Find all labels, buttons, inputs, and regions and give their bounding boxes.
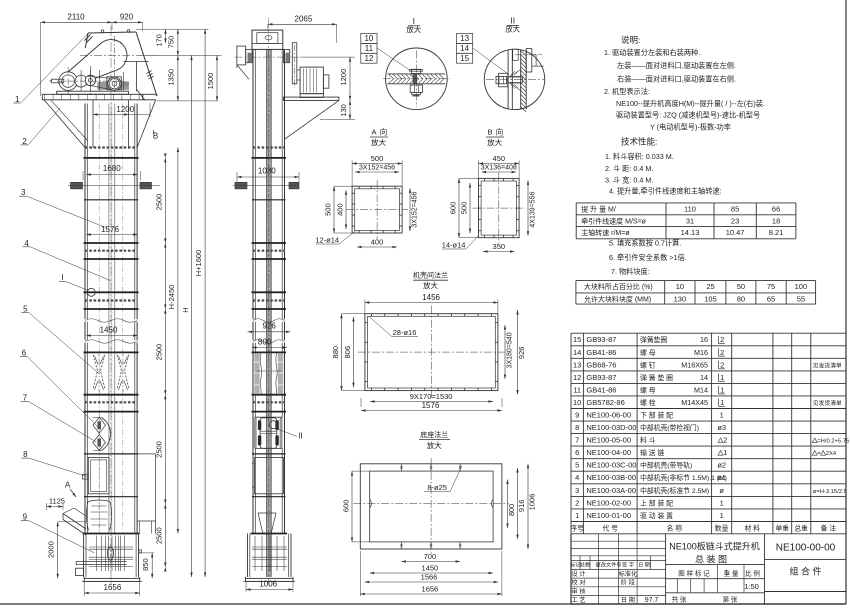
svg-text:1: 1 (575, 511, 579, 520)
svg-text:NE100-03A-00: NE100-03A-00 (586, 486, 636, 495)
svg-text:7: 7 (23, 393, 28, 402)
svg-text:螺 栓: 螺 栓 (640, 398, 656, 407)
svg-text:图 样 标 记: 图 样 标 记 (678, 569, 710, 578)
svg-text:350: 350 (493, 242, 506, 251)
svg-text:4: 4 (24, 239, 29, 248)
svg-text:1500: 1500 (206, 73, 215, 90)
svg-text:14: 14 (573, 348, 581, 357)
svg-text:GB93-87: GB93-87 (586, 373, 616, 382)
svg-text:序号: 序号 (570, 524, 584, 533)
svg-text:放大: 放大 (427, 440, 442, 450)
svg-text:800: 800 (507, 504, 516, 517)
svg-text:NE100-00-00: NE100-00-00 (776, 543, 836, 554)
svg-text:中部机壳(非标节 1.5M),1 (M): 中部机壳(非标节 1.5M),1 (M) (640, 473, 727, 482)
svg-text:M14: M14 (694, 385, 708, 394)
svg-text:1: 1 (720, 398, 724, 407)
svg-text:ø=H-3.15/2.5: ø=H-3.15/2.5 (813, 489, 847, 495)
svg-text:25: 25 (706, 282, 714, 291)
svg-text:数量: 数量 (715, 524, 729, 533)
svg-text:2: 2 (575, 498, 579, 507)
svg-text:2: 2 (22, 137, 27, 146)
svg-text:1125: 1125 (49, 497, 65, 506)
svg-text:14.13: 14.13 (681, 228, 700, 237)
svg-text:97.7: 97.7 (645, 597, 659, 604)
svg-text:750: 750 (167, 36, 176, 49)
svg-text:3: 3 (575, 486, 579, 495)
svg-text:第 张: 第 张 (723, 595, 738, 604)
svg-text:23: 23 (731, 216, 739, 225)
svg-text:12: 12 (364, 54, 373, 63)
svg-text:5: 5 (23, 305, 28, 314)
svg-text:2. 斗 距: 0.4 M.: 2. 斗 距: 0.4 M. (605, 164, 653, 173)
svg-text:ø2: ø2 (717, 461, 726, 470)
svg-text:3: 3 (21, 188, 26, 197)
svg-text:14: 14 (700, 373, 708, 382)
svg-text:4X139=556: 4X139=556 (530, 191, 537, 227)
svg-text:允许大块料块度 (MM): 允许大块料块度 (MM) (584, 295, 651, 304)
svg-text:700: 700 (424, 552, 437, 561)
svg-text:1: 1 (720, 411, 724, 420)
svg-text:见发货清单: 见发货清单 (813, 399, 842, 407)
svg-text:2500: 2500 (155, 194, 164, 211)
svg-text:放大: 放大 (423, 280, 438, 290)
svg-text:NE100-03B-00: NE100-03B-00 (586, 473, 636, 482)
svg-text:中部机壳(标准节 2.5M): 中部机壳(标准节 2.5M) (640, 486, 709, 495)
svg-text:向: 向 (380, 127, 388, 137)
svg-text:1576: 1576 (101, 225, 119, 234)
svg-text:弹 簧 垫 圈: 弹 簧 垫 圈 (640, 373, 673, 382)
svg-text:5. 填充系数按 0.7计算.: 5. 填充系数按 0.7计算. (609, 238, 681, 247)
svg-text:600: 600 (342, 500, 351, 513)
svg-text:处数: 处数 (580, 561, 591, 569)
svg-text:3X136=408: 3X136=408 (481, 165, 517, 172)
svg-text:2500: 2500 (155, 344, 164, 361)
svg-text:1200: 1200 (116, 105, 134, 114)
svg-text:880: 880 (331, 346, 340, 359)
svg-text:Y (电动机型号)-极数-功率: Y (电动机型号)-极数-功率 (650, 122, 731, 131)
svg-text:底座法兰: 底座法兰 (420, 430, 448, 439)
svg-text:8: 8 (575, 423, 579, 432)
svg-text:2500: 2500 (155, 527, 164, 544)
svg-text:M16X65: M16X65 (681, 360, 708, 369)
svg-text:50: 50 (737, 282, 745, 291)
svg-text:105: 105 (704, 295, 717, 304)
svg-text:18: 18 (772, 216, 780, 225)
svg-text:130: 130 (339, 104, 348, 117)
svg-text:2: 2 (723, 436, 727, 445)
svg-text:1006: 1006 (528, 494, 537, 511)
svg-text:9: 9 (575, 411, 579, 420)
svg-text:II: II (298, 432, 302, 441)
svg-text:2110: 2110 (67, 13, 85, 22)
svg-text:1: 1 (720, 511, 724, 520)
svg-text:螺 钉: 螺 钉 (640, 360, 656, 369)
svg-text:1680: 1680 (103, 164, 121, 173)
svg-text:NE100-03C-00: NE100-03C-00 (586, 461, 636, 470)
svg-text:130: 130 (674, 295, 687, 304)
svg-text:450: 450 (493, 154, 506, 163)
svg-text:见发货清单: 见发货清单 (813, 361, 842, 369)
svg-text:GB5782-86: GB5782-86 (586, 398, 624, 407)
svg-text:代 号: 代 号 (602, 524, 618, 533)
svg-text:1. 驱动装置分左装和右装两种.: 1. 驱动装置分左装和右装两种. (604, 48, 700, 57)
svg-text:1200: 1200 (339, 69, 348, 86)
svg-text:=: = (817, 451, 821, 457)
svg-text:1456: 1456 (422, 293, 440, 302)
svg-text:ø3: ø3 (717, 423, 726, 432)
svg-text:上 部 装 配: 上 部 装 配 (640, 498, 673, 507)
svg-text:500: 500 (324, 203, 333, 216)
svg-text:NE100-04-00: NE100-04-00 (586, 448, 631, 457)
svg-text:7: 7 (575, 436, 579, 445)
svg-text:75: 75 (767, 282, 775, 291)
svg-text:110: 110 (684, 205, 696, 214)
svg-text:10: 10 (676, 282, 684, 291)
svg-text:GB41-86: GB41-86 (586, 348, 616, 357)
svg-text:料 斗: 料 斗 (640, 436, 656, 445)
svg-text:66: 66 (772, 205, 780, 214)
svg-text:更改文件号: 更改文件号 (596, 561, 622, 569)
svg-text:8.21: 8.21 (769, 228, 784, 237)
svg-text:16: 16 (700, 335, 708, 344)
svg-text:6. 牵引件安全系数 >1倍.: 6. 牵引件安全系数 >1倍. (609, 253, 687, 262)
svg-text:NE100--提升机高度H(M)--提升量( / ): NE100--提升机高度H(M)--提升量( / )--左(右)装. (616, 99, 765, 108)
svg-text:3X152=456: 3X152=456 (359, 165, 395, 172)
svg-text:A: A (371, 128, 376, 137)
svg-text:NE100-05-00: NE100-05-00 (586, 436, 631, 445)
svg-text:2: 2 (720, 348, 724, 357)
svg-text:共 张: 共 张 (672, 595, 687, 604)
svg-text:右装——面对进料口,驱动装置在右侧.: 右装——面对进料口,驱动装置在右侧. (617, 75, 736, 84)
svg-text:1576: 1576 (422, 401, 440, 410)
svg-text:放大: 放大 (505, 23, 520, 33)
svg-text:806: 806 (343, 346, 352, 359)
svg-text:4: 4 (575, 473, 579, 482)
svg-text:重 量: 重 量 (724, 570, 739, 578)
svg-text:13: 13 (460, 34, 469, 43)
svg-text:500: 500 (371, 154, 384, 163)
svg-text:2X4: 2X4 (826, 451, 837, 457)
svg-text:M16: M16 (694, 348, 708, 357)
svg-text:提 升 量 M/: 提 升 量 M/ (581, 205, 616, 214)
svg-text:15: 15 (460, 54, 469, 63)
svg-text:B: B (487, 128, 492, 137)
svg-text:920: 920 (120, 13, 134, 22)
svg-text:工 艺: 工 艺 (571, 596, 585, 604)
svg-text:2. 机型表示法:: 2. 机型表示法: (604, 87, 650, 96)
svg-text:组 合 件: 组 合 件 (789, 566, 821, 577)
svg-text:NE100板链斗式提升机: NE100板链斗式提升机 (669, 541, 760, 552)
svg-text:600: 600 (449, 202, 458, 215)
svg-text:55: 55 (797, 295, 805, 304)
svg-text:500: 500 (460, 202, 469, 215)
svg-text:13: 13 (573, 360, 581, 369)
svg-text:916: 916 (517, 500, 526, 513)
svg-text:日 期: 日 期 (638, 562, 650, 569)
svg-text:GB68-76: GB68-76 (586, 360, 616, 369)
svg-text:9: 9 (23, 512, 28, 521)
svg-text:GB93-87: GB93-87 (586, 335, 616, 344)
svg-text:总 装 图: 总 装 图 (695, 554, 727, 565)
svg-text:H: H (181, 307, 190, 312)
svg-text:设 计: 设 计 (571, 570, 585, 578)
svg-text:4. 提升量,牵引件线速度和主轴转速:: 4. 提升量,牵引件线速度和主轴转速: (609, 187, 722, 196)
svg-text:10.47: 10.47 (726, 228, 745, 237)
svg-text:中部机壳(带检视门): 中部机壳(带检视门) (640, 423, 699, 432)
svg-text:926: 926 (263, 322, 277, 331)
svg-text:80: 80 (737, 295, 745, 304)
svg-text:放大: 放大 (487, 137, 502, 147)
svg-text:12: 12 (573, 373, 581, 382)
svg-text:日 期: 日 期 (621, 596, 635, 604)
svg-text:驱 动 装 置: 驱 动 装 置 (640, 511, 673, 520)
svg-text:输 送 链: 输 送 链 (640, 448, 664, 457)
svg-text:1: 1 (720, 498, 724, 507)
svg-text:1656: 1656 (422, 585, 439, 594)
svg-text:材 料: 材 料 (745, 524, 761, 533)
svg-text:6: 6 (22, 349, 27, 358)
svg-text:926: 926 (517, 347, 526, 360)
svg-text:阶 段: 阶 段 (621, 579, 635, 587)
svg-text:400: 400 (371, 238, 384, 247)
svg-text:1:50: 1:50 (744, 582, 759, 591)
svg-text:主轴转速 r/M=ø: 主轴转速 r/M=ø (581, 228, 630, 237)
svg-text:大块料所占百分比 (%): 大块料所占百分比 (%) (584, 282, 653, 291)
svg-text:1450: 1450 (100, 325, 118, 334)
svg-text:向: 向 (496, 127, 504, 137)
svg-text:1006: 1006 (259, 580, 277, 589)
svg-text:放大: 放大 (406, 24, 421, 34)
svg-text:1: 1 (720, 385, 724, 394)
svg-text:1450: 1450 (422, 564, 439, 573)
svg-text:8: 8 (23, 450, 28, 459)
svg-text:1: 1 (15, 95, 20, 104)
svg-text:2500: 2500 (155, 441, 164, 458)
svg-text:技术性能:: 技术性能: (621, 137, 657, 147)
svg-text:牵引件线速度 M/S=ø: 牵引件线速度 M/S=ø (581, 216, 646, 225)
svg-text:7. 物料块度:: 7. 物料块度: (611, 267, 650, 276)
svg-text:2: 2 (720, 335, 724, 344)
svg-text:2000: 2000 (47, 541, 56, 558)
svg-text:14: 14 (460, 44, 469, 53)
svg-text:400: 400 (336, 203, 345, 216)
svg-text:机壳间法兰: 机壳间法兰 (413, 271, 448, 280)
svg-text:15: 15 (573, 335, 581, 344)
svg-text:8-ø25: 8-ø25 (427, 483, 447, 492)
svg-text:中部机壳(带导轨): 中部机壳(带导轨) (640, 461, 692, 470)
svg-text:NE100-02-00: NE100-02-00 (586, 498, 631, 507)
svg-text:标准化: 标准化 (619, 570, 638, 578)
svg-text:名 称: 名 称 (667, 524, 683, 533)
svg-text:5: 5 (575, 461, 579, 470)
svg-text:总重: 总重 (794, 524, 808, 533)
svg-text:M14X45: M14X45 (681, 398, 708, 407)
svg-text:=H/0.2+5.75: =H/0.2+5.75 (817, 439, 849, 445)
svg-text:弹簧垫圈: 弹簧垫圈 (640, 335, 667, 344)
svg-text:H+1600: H+1600 (194, 250, 203, 276)
svg-text:11: 11 (365, 44, 374, 53)
svg-text:65: 65 (767, 295, 775, 304)
svg-text:NE100-06-00: NE100-06-00 (586, 411, 631, 420)
svg-text:100: 100 (795, 282, 808, 291)
svg-text:放大: 放大 (371, 137, 386, 147)
svg-text:螺 母: 螺 母 (640, 348, 656, 357)
svg-text:NE100-03D-00: NE100-03D-00 (586, 423, 636, 432)
svg-text:2: 2 (720, 360, 724, 369)
svg-text:800: 800 (258, 337, 272, 346)
svg-text:9X170=1530: 9X170=1530 (410, 392, 453, 401)
svg-text:1. 料斗容积: 0.033 M.: 1. 料斗容积: 0.033 M. (605, 152, 674, 161)
svg-text:1566: 1566 (421, 573, 438, 582)
svg-text:11: 11 (573, 385, 581, 394)
svg-text:1030: 1030 (258, 167, 276, 176)
svg-text:H-2450: H-2450 (167, 285, 176, 310)
svg-text:1: 1 (720, 373, 724, 382)
svg-text:170: 170 (155, 34, 164, 47)
svg-text:签 字: 签 字 (622, 561, 634, 569)
svg-text:28-ø16: 28-ø16 (393, 328, 417, 337)
svg-text:单重: 单重 (776, 524, 790, 533)
svg-text:ø: ø (719, 486, 724, 495)
svg-text:审 核: 审 核 (571, 587, 585, 595)
svg-text:驱动装置型号: JZQ (减速机型号)-速比-机型号: 驱动装置型号: JZQ (减速机型号)-速比-机型号 (616, 111, 760, 120)
svg-text:ø1: ø1 (717, 473, 726, 482)
svg-text:GB41-86: GB41-86 (586, 385, 616, 394)
svg-text:1656: 1656 (104, 583, 122, 592)
svg-text:比 例: 比 例 (745, 569, 760, 578)
svg-text:I: I (61, 273, 63, 282)
svg-text:螺 母: 螺 母 (640, 385, 656, 394)
svg-text:10: 10 (364, 34, 373, 43)
svg-text:校 对: 校 对 (571, 579, 585, 587)
svg-text:2065: 2065 (295, 15, 313, 24)
svg-text:备 注: 备 注 (821, 524, 837, 533)
svg-text:10: 10 (573, 398, 581, 407)
svg-text:850: 850 (141, 558, 150, 571)
svg-text:3X180=540: 3X180=540 (507, 332, 514, 368)
svg-text:6: 6 (575, 448, 579, 457)
svg-text:说明:: 说明: (621, 35, 640, 45)
svg-text:31: 31 (686, 216, 694, 225)
svg-text:1: 1 (723, 448, 727, 457)
svg-text:下 部 装 配: 下 部 装 配 (640, 411, 673, 420)
svg-text:3. 斗 宽: 0.4 M.: 3. 斗 宽: 0.4 M. (605, 175, 653, 184)
svg-text:12-ø14: 12-ø14 (315, 235, 339, 244)
svg-text:NE100-01-00: NE100-01-00 (586, 511, 631, 520)
svg-text:A: A (65, 481, 71, 490)
svg-text:85: 85 (731, 205, 739, 214)
svg-text:1350: 1350 (167, 69, 176, 86)
svg-text:3X152=456: 3X152=456 (412, 191, 419, 227)
svg-text:左装——面对进料口,驱动装置在左侧.: 左装——面对进料口,驱动装置在左侧. (617, 61, 736, 70)
svg-text:14-ø14: 14-ø14 (442, 240, 466, 249)
